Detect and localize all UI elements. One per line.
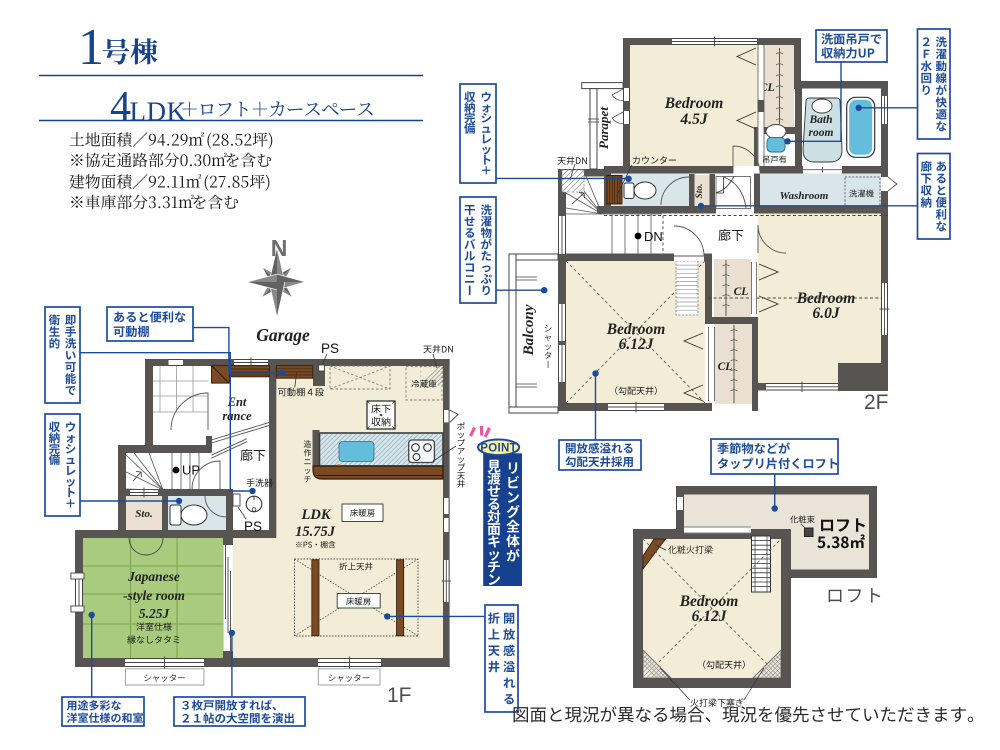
svg-text:Japanese: Japanese [127,569,180,584]
svg-text:LDK: LDK [301,507,332,523]
svg-text:1: 1 [78,19,104,76]
svg-text:PS: PS [244,519,262,534]
svg-text:Garage: Garage [256,325,310,345]
svg-text:Bath: Bath [808,114,832,126]
svg-text:Sto.: Sto. [695,183,705,198]
svg-text:6.12J: 6.12J [619,336,655,353]
svg-text:1F: 1F [387,684,412,707]
svg-text:-style room: -style room [123,588,185,603]
svg-text:LDK: LDK [130,97,187,127]
svg-text:4.5J: 4.5J [679,111,708,128]
svg-text:6.12J: 6.12J [692,608,728,625]
svg-text:room: room [809,127,834,139]
svg-text:2F: 2F [864,391,889,414]
svg-text:5.25J: 5.25J [139,606,171,621]
svg-text:Bedroom: Bedroom [664,95,724,112]
svg-text:Sto.: Sto. [135,508,152,520]
svg-text:4: 4 [110,84,131,130]
svg-text:Parapet: Parapet [596,107,611,149]
svg-text:N: N [271,235,288,261]
svg-text:POINT: POINT [480,442,517,454]
svg-text:CL: CL [734,286,749,298]
svg-text:Washroom: Washroom [780,190,829,202]
svg-text:PS: PS [321,341,339,356]
svg-text:15.75J: 15.75J [295,524,336,540]
svg-text:6.0J: 6.0J [812,305,840,322]
svg-text:CL: CL [718,361,733,373]
svg-text:rance: rance [222,409,252,423]
svg-text:DN: DN [644,229,663,244]
svg-text:Balcony: Balcony [521,304,537,356]
svg-text:UP: UP [182,463,200,478]
